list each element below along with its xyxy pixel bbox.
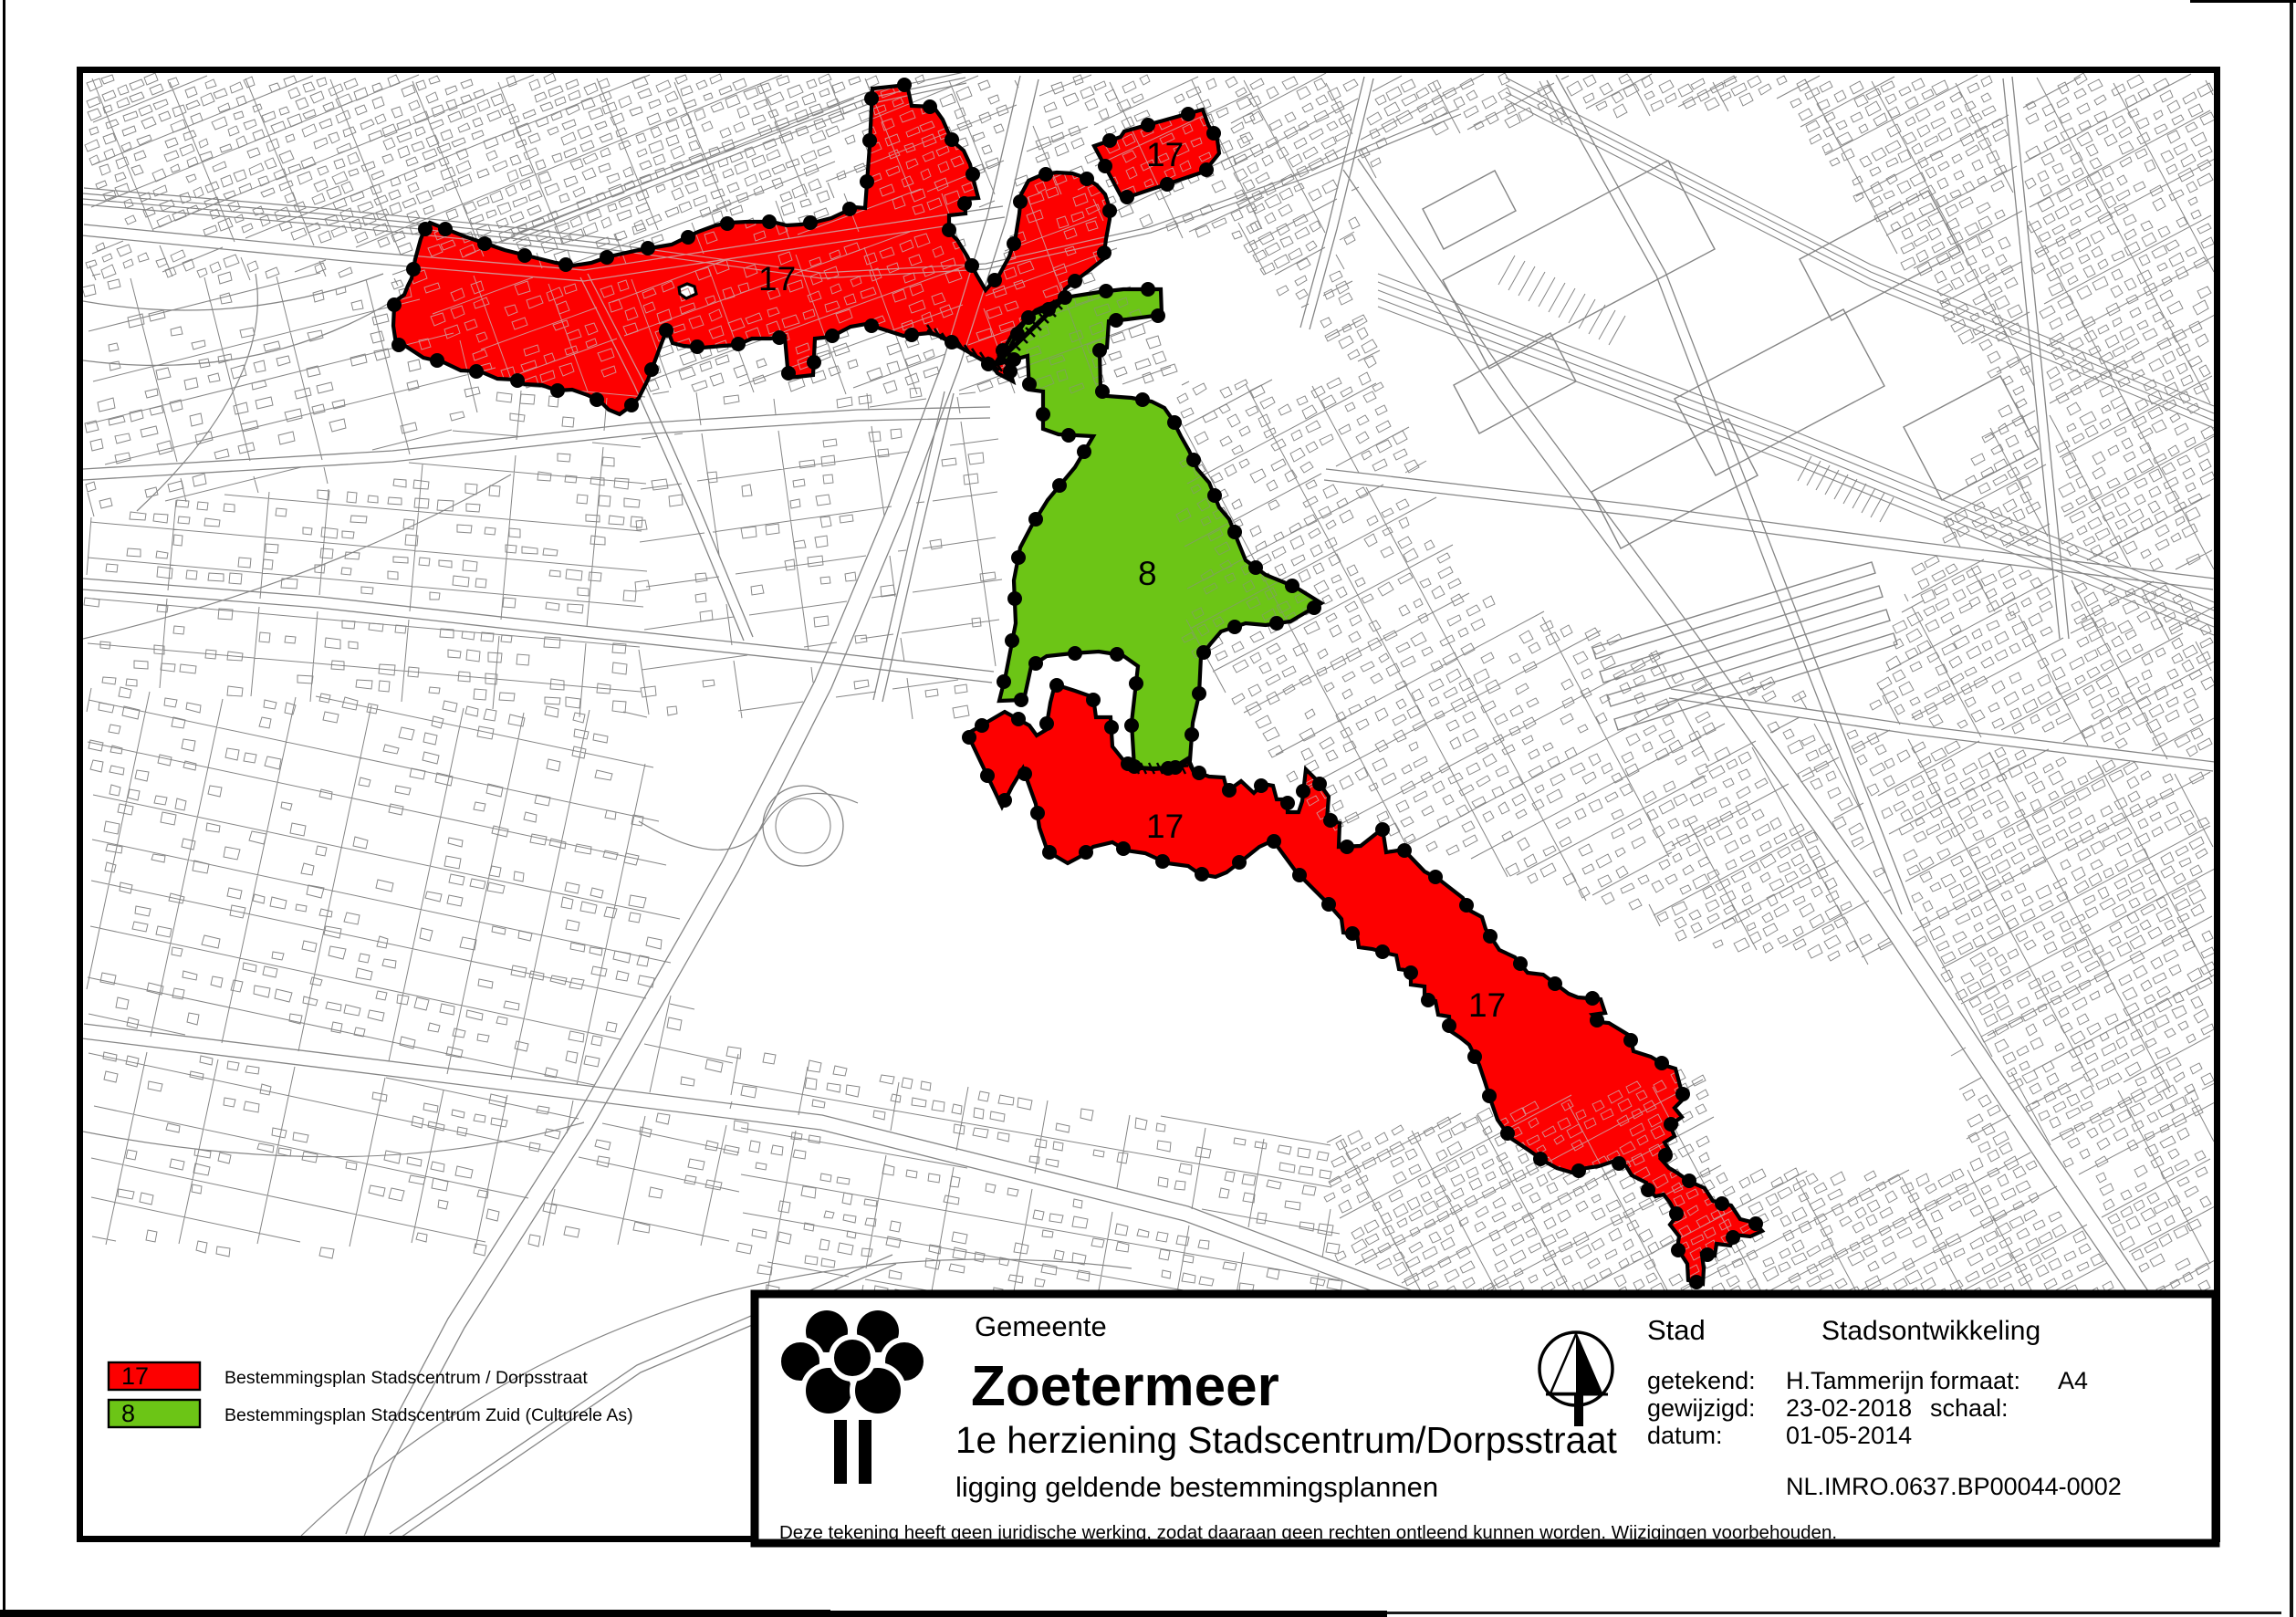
svg-text:17: 17 xyxy=(758,260,796,297)
svg-text:8: 8 xyxy=(121,1400,135,1427)
svg-text:Bestemmingsplan Stadscentrum /: Bestemmingsplan Stadscentrum / Dorpsstra… xyxy=(224,1368,588,1388)
svg-text:datum:: datum: xyxy=(1647,1422,1723,1449)
svg-text:23-02-2018: 23-02-2018 xyxy=(1786,1394,1912,1422)
svg-text:gewijzigd:: gewijzigd: xyxy=(1647,1394,1756,1422)
svg-text:17: 17 xyxy=(1468,986,1506,1024)
svg-text:17: 17 xyxy=(121,1362,149,1390)
svg-text:01-05-2014: 01-05-2014 xyxy=(1786,1422,1912,1449)
svg-text:17: 17 xyxy=(1146,136,1184,173)
svg-text:Gemeente: Gemeente xyxy=(975,1310,1107,1342)
svg-text:17: 17 xyxy=(1146,808,1184,845)
svg-text:A4: A4 xyxy=(2058,1367,2088,1394)
svg-text:NL.IMRO.0637.BP00044-0002: NL.IMRO.0637.BP00044-0002 xyxy=(1786,1473,2122,1500)
svg-text:Stad: Stad xyxy=(1647,1314,1706,1346)
svg-text:schaal:: schaal: xyxy=(1930,1394,2009,1422)
svg-text:Zoetermeer: Zoetermeer xyxy=(971,1355,1279,1418)
svg-text:Bestemmingsplan Stadscentrum Z: Bestemmingsplan Stadscentrum Zuid (Cultu… xyxy=(224,1405,633,1425)
svg-text:Deze tekening heeft geen jurid: Deze tekening heeft geen juridische werk… xyxy=(779,1522,1837,1543)
svg-text:getekend:: getekend: xyxy=(1647,1367,1756,1394)
svg-text:ligging geldende bestemmingspl: ligging geldende bestemmingsplannen xyxy=(955,1471,1438,1503)
svg-text:formaat:: formaat: xyxy=(1930,1367,2020,1394)
svg-text:8: 8 xyxy=(1138,555,1157,592)
svg-text:1e herziening Stadscentrum/Dor: 1e herziening Stadscentrum/Dorpsstraat xyxy=(955,1419,1617,1461)
svg-text:H.Tammerijn: H.Tammerijn xyxy=(1786,1367,1925,1394)
svg-text:Stadsontwikkeling: Stadsontwikkeling xyxy=(1821,1316,2040,1346)
